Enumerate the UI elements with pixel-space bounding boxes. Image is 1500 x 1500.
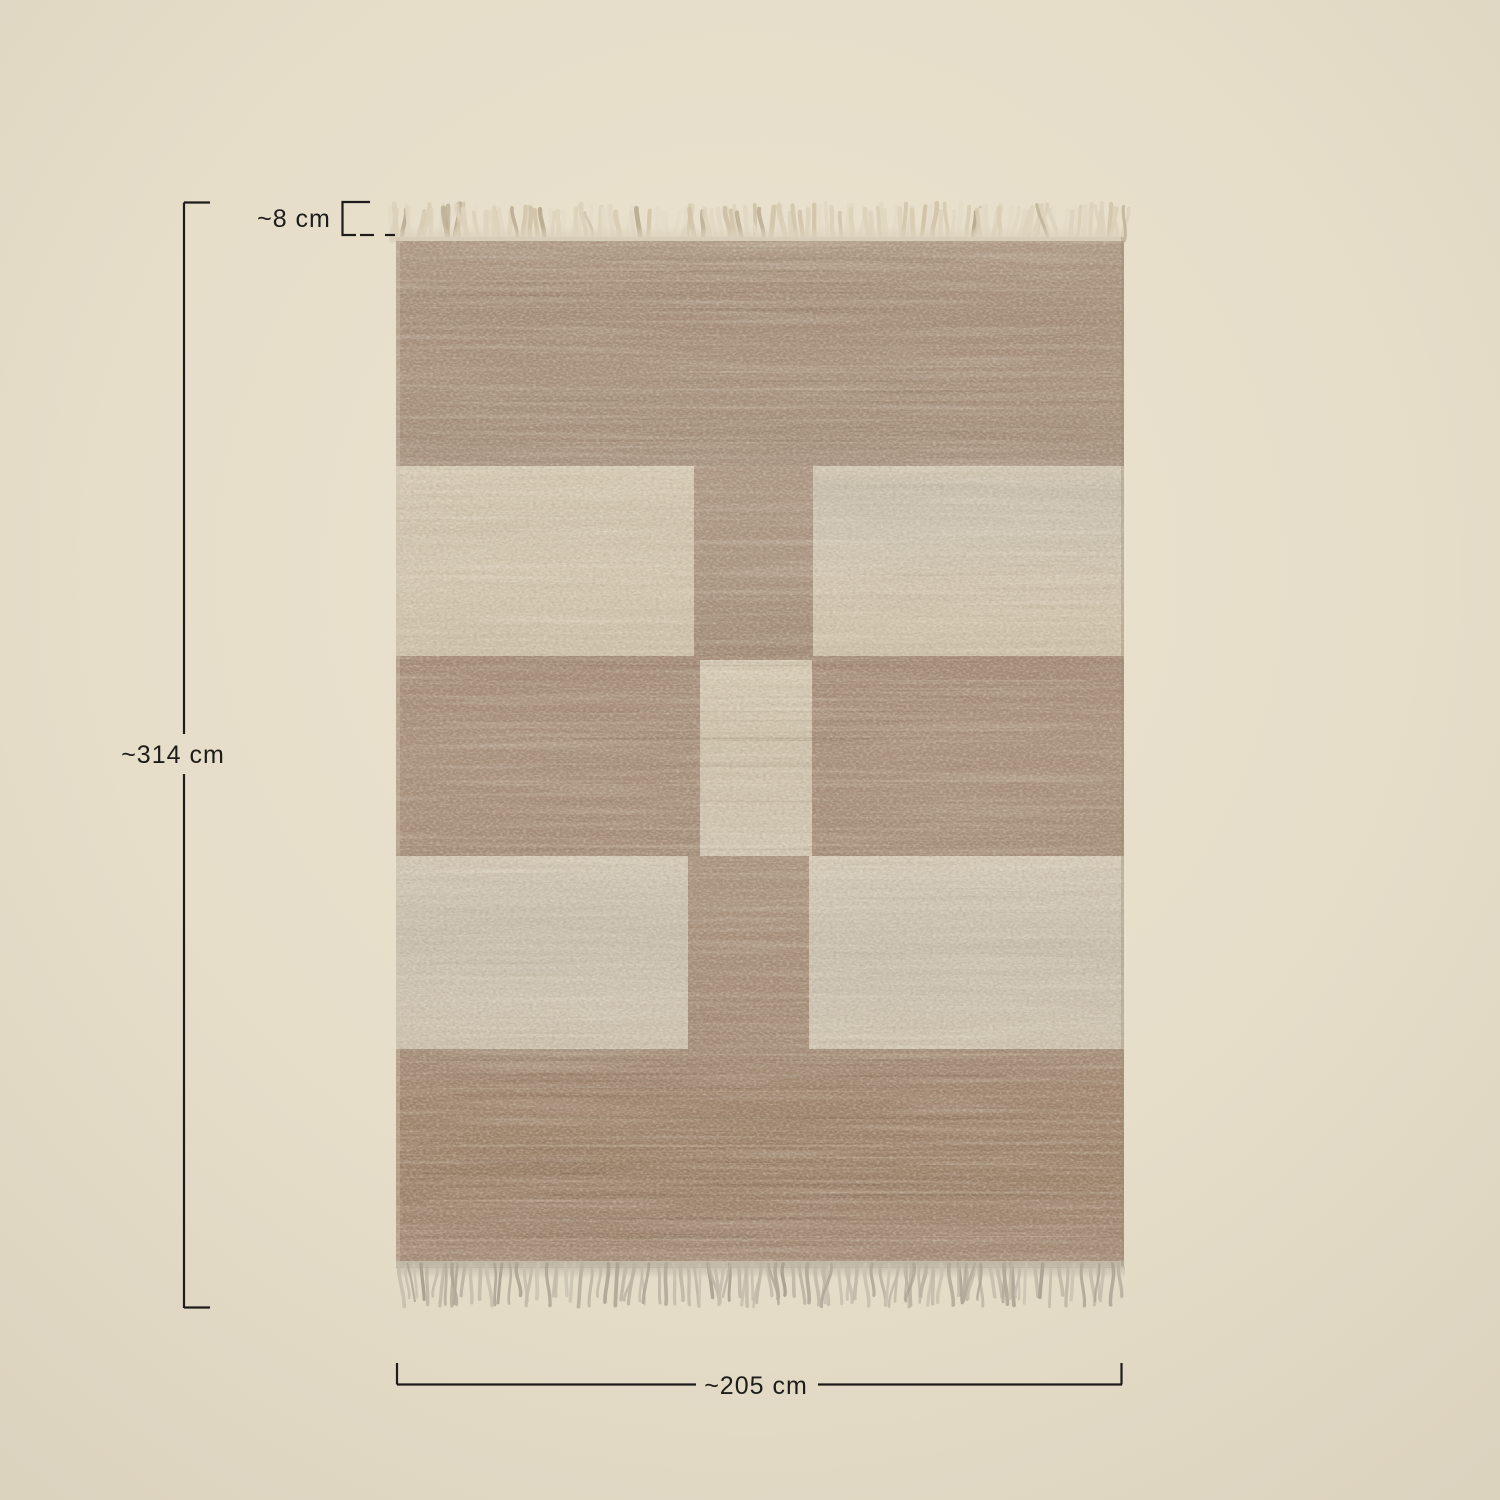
svg-text:~314 cm: ~314 cm (121, 741, 225, 769)
svg-text:~205 cm: ~205 cm (704, 1372, 808, 1400)
svg-text:~8 cm: ~8 cm (257, 205, 331, 233)
